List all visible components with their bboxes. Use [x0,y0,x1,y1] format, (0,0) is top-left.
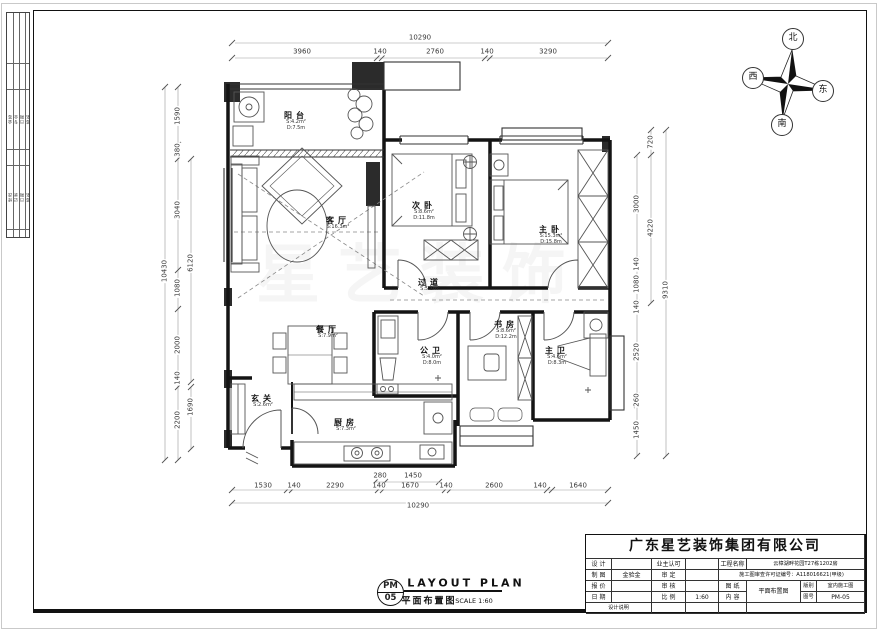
tb-version-label: 版别 [801,581,817,592]
sheet-number: 05 [378,593,403,604]
compass-east: 东 [812,80,834,102]
dim-label: 140 [532,483,547,490]
dim-label: 1690 [188,397,195,417]
tb-check-label: 审 核 [652,581,686,592]
room-label-dining: 餐厅 S:7.9m² [316,325,340,340]
title-underline [404,590,502,592]
tb-project-label: 工程名称 [719,559,747,570]
tb-empty [686,603,719,614]
title-block: 广东星艺装饰集团有限公司 设 计 业主认可 工程名称 云樟湖畔花园T27栋120… [585,534,866,613]
dim-label: 140 [438,483,453,490]
dim-label: 1080 [175,278,182,298]
dim-label: 1670 [400,483,420,490]
dim-label: 1080 [634,274,641,294]
dim-label: 140 [371,483,386,490]
tb-note-label: 设计说明 [586,603,652,614]
drawing-sheet: 会签 专业 日期 签名 修改 记录 日期 签名 星艺装饰 [0,0,878,632]
tb-empty [652,603,686,614]
tb-owner-value [686,559,719,570]
plan-title-en: LAYOUT PLAN [407,577,524,590]
dim-label: 1640 [568,483,588,490]
dim-label: 280 [372,473,387,480]
room-label-mbath: 主卫 S:4.6m² D:8.3m [545,346,569,366]
tb-empty [747,603,865,614]
dim-label: 3040 [175,200,182,220]
tb-scale-value: 1:60 [686,592,719,603]
room-label-kitchen: 厨房 S:7.3m² [334,418,358,433]
dim-label: 2760 [425,49,445,56]
room-label-living: 客厅 S:16.3m² [326,216,350,231]
tb-date-label: 日 期 [586,592,612,603]
tb-draft-label: 制 图 [586,570,612,581]
structural-columns [224,62,610,448]
plan-title-cn: 平面布置图 [401,594,456,607]
tb-no-value: PM-05 [817,592,865,603]
dim-label: 140 [175,370,182,385]
tb-check-value [686,581,719,592]
tb-project-value: 云樟湖畔花园T27栋1202房 [747,559,865,570]
dim-label: 1590 [175,106,182,126]
plan-scale: SCALE 1:60 [455,597,493,605]
room-label-balcony: 阳台 S:4.2m² D:7.5m [284,111,308,131]
dim-label: 3290 [538,49,558,56]
dim-label: 2000 [175,335,182,355]
dim-label: 260 [634,392,641,407]
tb-approve-label: 审 定 [652,570,686,581]
room-label-study: 书房 S:8.6m² D:12.2m [494,320,518,340]
tb-version-value: 室内施工图 [817,581,865,592]
tb-no-label: 图号 [801,592,817,603]
tb-sheet-value: 平面布置图 [747,581,801,603]
dim-label: 720 [648,134,655,149]
tb-design-label: 设 计 [586,559,612,570]
dim-label: 10290 [406,503,430,510]
dim-label: 3960 [292,49,312,56]
dim-label: 380 [175,142,182,157]
tb-design-value [612,559,652,570]
dim-label: 10430 [162,259,169,283]
room-label-master: 主卧 S:15.3m² D:15.8m [539,225,563,245]
dim-label: 140 [634,299,641,314]
tb-scale-label: 比 例 [652,592,686,603]
tb-quote-value [612,581,652,592]
sheet-number-bubble: PM 05 [377,579,404,606]
dim-label: 140 [286,483,301,490]
dim-label: 3000 [634,194,641,214]
walls [228,84,610,466]
dim-label: 4220 [648,218,655,238]
dim-label: 9310 [663,280,670,300]
dim-label: 1450 [634,420,641,440]
compass-west: 西 [742,67,764,89]
dim-label: 140 [372,49,387,56]
tb-empty [719,603,747,614]
room-label-bath: 公卫 S:4.0m² D:8.0m [420,346,444,366]
dim-label: 2200 [175,410,182,430]
tb-date-value [612,592,652,603]
room-label-foyer: 玄关 S:2.6m² [251,394,275,409]
tb-quote-label: 报 价 [586,581,612,592]
tb-owner-label: 业主认可 [652,559,686,570]
tb-content-label: 内 容 [719,592,747,603]
compass-north: 北 [782,28,804,50]
compass-south: 南 [771,114,793,136]
tb-approve-value [686,570,719,581]
dim-label: 2600 [484,483,504,490]
dim-label: 2520 [634,342,641,362]
dim-label: 1530 [253,483,273,490]
dim-label: 2290 [325,483,345,490]
room-label-corridor: 过道 S:5.1m² [418,278,442,293]
dim-label: 10290 [408,35,432,42]
dim-label: 140 [479,49,494,56]
dimension-ticks [162,40,669,506]
tb-draft-value: 金验金 [612,570,652,581]
tb-sheet-label: 图 纸 [719,581,747,592]
dim-label: 1450 [403,473,423,480]
sheet-number-prefix: PM [378,580,403,593]
tb-permit: 施工图审查许可证编号：A118016621(甲级) [719,570,865,581]
company-name: 广东星艺装饰集团有限公司 [586,535,865,559]
dim-label: 6120 [188,253,195,273]
room-label-bed2: 次卧 S:8.6m² D:11.8m [412,201,436,221]
dim-label: 140 [634,256,641,271]
